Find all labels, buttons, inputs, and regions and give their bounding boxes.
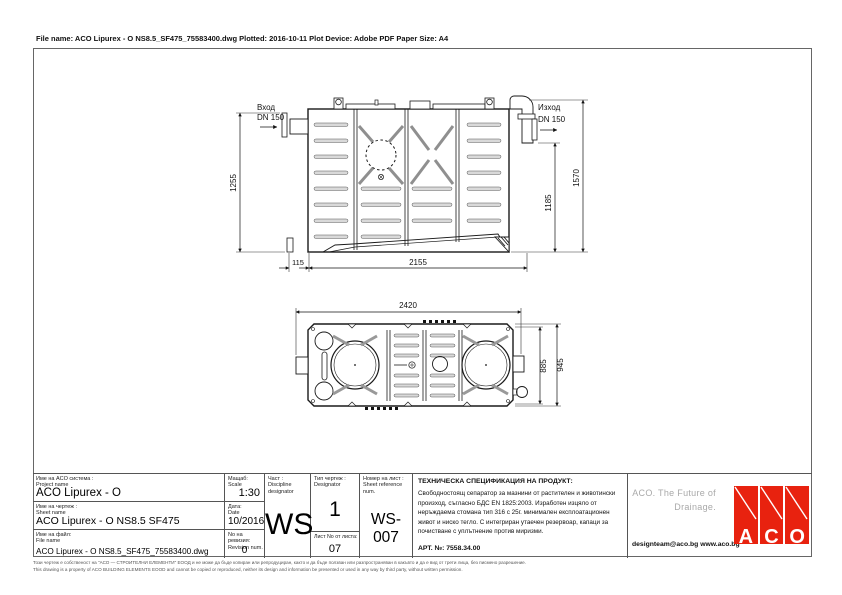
file-label-en: File name: [36, 538, 224, 544]
vent-hatch: [410, 101, 430, 109]
connector-bar: [322, 352, 327, 380]
plot-header: File name: ACO Lipurex - O NS8.5_SF475_7…: [36, 34, 448, 43]
inlet-stub: [296, 357, 308, 374]
aco-logo-panel: C: [760, 486, 784, 544]
sloped-floor: [323, 234, 509, 252]
spec-cell: ТЕХНИЧЕСКА СПЕЦИФИКАЦИЯ НА ПРОДУКТ: Своб…: [413, 474, 628, 558]
dim-945: 945: [556, 358, 565, 372]
aco-logo-panel: O: [785, 486, 809, 544]
aco-logo: A C O: [734, 486, 809, 544]
dim-1255: 1255: [229, 174, 238, 192]
mid-rib-slots: [394, 334, 455, 397]
inlet-dn-label: DN 150: [257, 113, 285, 122]
manhole-left: [331, 341, 379, 389]
lifting-lug: [485, 98, 494, 109]
revision-cell: No на ревизия:Revision num. 0: [225, 530, 264, 558]
scale-value: 1:30: [239, 487, 260, 499]
sheet-ref-value: WS-007: [360, 511, 412, 547]
type-value: 1: [311, 498, 359, 522]
slogan-line1: ACO. The Future of: [632, 488, 716, 498]
outlet-stub: [513, 356, 524, 372]
discipline-cell: Част :Discipline designator WS: [265, 474, 311, 558]
sheet-no-label: Лист No от листа:: [314, 534, 359, 540]
slogan-line2: Drainage.: [674, 502, 716, 512]
drawing-sheet: File name: ACO Lipurex - O NS8.5_SF475_7…: [0, 0, 842, 595]
vent-fitting: [409, 362, 415, 368]
side-view: [282, 96, 537, 252]
inlet-pipe: [282, 113, 308, 137]
title-block: Име на ACO система :Project name ACO Lip…: [33, 473, 812, 557]
date-cell: Дата:Date 10/2016: [225, 502, 264, 530]
spec-art-no: АРТ. №: 7558.34.00: [418, 544, 480, 554]
outlet-label: Изход: [538, 103, 561, 112]
plan-view: [296, 320, 528, 410]
sheet-no-value: 07: [311, 543, 359, 555]
manhole-right: [462, 341, 510, 389]
diagonal-braces: [359, 126, 453, 184]
sheet-name-cell: Име на чертеж :Sheet name ACO Lipurex - …: [33, 502, 224, 530]
revision-value: 0: [225, 545, 264, 556]
outlet-pipe: [510, 96, 537, 143]
type-label-en: Designator: [314, 482, 359, 488]
sheet-name: ACO Lipurex - O NS8.5 SF475: [36, 515, 180, 527]
rib-slots: [314, 123, 501, 238]
aco-logo-letter-a: A: [734, 527, 758, 544]
revision-label-bg: No на ревизия:: [228, 532, 264, 545]
sheet-ref-cell: Номер на лист :Sheet reference num. WS-0…: [360, 474, 413, 558]
file-name: ACO Lipurex - O NS8.5_SF475_75583400.dwg: [36, 547, 209, 556]
scale-cell: Мащаб:Scale 1:30: [225, 474, 264, 502]
dim-2155: 2155: [409, 258, 427, 267]
project-name-cell: Име на ACO система :Project name ACO Lip…: [33, 474, 224, 502]
brand-slogan: ACO. The Future of Drainage.: [628, 487, 716, 514]
type-cell: Тип чертеж :Designator 1 Лист No от лист…: [311, 474, 360, 558]
flange-circle: [366, 140, 396, 170]
sheet-no-cell: Лист No от листа: 07: [311, 532, 359, 558]
spec-body: Свободностоящ сепаратор за мазнини от ра…: [418, 489, 622, 536]
dim-2420: 2420: [399, 301, 417, 310]
project-name: ACO Lipurex - O: [36, 487, 121, 499]
discipline-label-en: Discipline designator: [268, 482, 310, 495]
stiffeners: [354, 109, 459, 250]
technical-drawing: Вход DN 150 Изход DN 150 1255 115 2155: [33, 48, 812, 473]
date-value: 10/2016: [228, 516, 264, 527]
sheet-ref-label-en: Sheet reference num.: [363, 482, 412, 495]
top-cover-strip: [346, 104, 395, 109]
copyright-note: Този чертеж е собственост на "АСО — СТРО…: [33, 560, 812, 574]
small-opening: [315, 332, 333, 350]
small-opening: [315, 382, 333, 400]
mid-stiffeners: [387, 330, 462, 401]
dim-1185: 1185: [544, 194, 553, 212]
aco-logo-panel: A: [734, 486, 758, 544]
inlet-drop-leg: [287, 238, 293, 252]
copyright-en: This drawing is a property of ACO BUILDI…: [33, 567, 812, 574]
copyright-bg: Този чертеж е собственост на "АСО — СТРО…: [33, 560, 812, 567]
lifting-lug: [334, 98, 343, 109]
outlet-dn-label: DN 150: [538, 115, 566, 124]
aco-logo-letter-c: C: [760, 527, 784, 544]
drain-plug: [378, 174, 383, 179]
file-name-cell: Име на файл:File name ACO Lipurex - O NS…: [33, 530, 224, 558]
branding-cell: ACO. The Future of Drainage. designteam@…: [628, 474, 812, 558]
discipline-value: WS: [265, 508, 310, 542]
dim-885: 885: [539, 359, 548, 373]
dim-1570: 1570: [572, 169, 581, 187]
center-opening: [433, 357, 448, 372]
top-cover-strip: [433, 104, 485, 109]
aco-logo-letter-o: O: [785, 527, 809, 544]
dim-115: 115: [292, 258, 304, 267]
spec-title: ТЕХНИЧЕСКА СПЕЦИФИКАЦИЯ НА ПРОДУКТ:: [418, 477, 622, 487]
brand-contacts: designteam@aco.bg www.aco.bg: [632, 541, 740, 548]
inlet-label: Вход: [257, 103, 275, 112]
outlet-side-port: [513, 387, 528, 398]
plan-view-dimensions: 2420 885 945: [296, 301, 565, 406]
